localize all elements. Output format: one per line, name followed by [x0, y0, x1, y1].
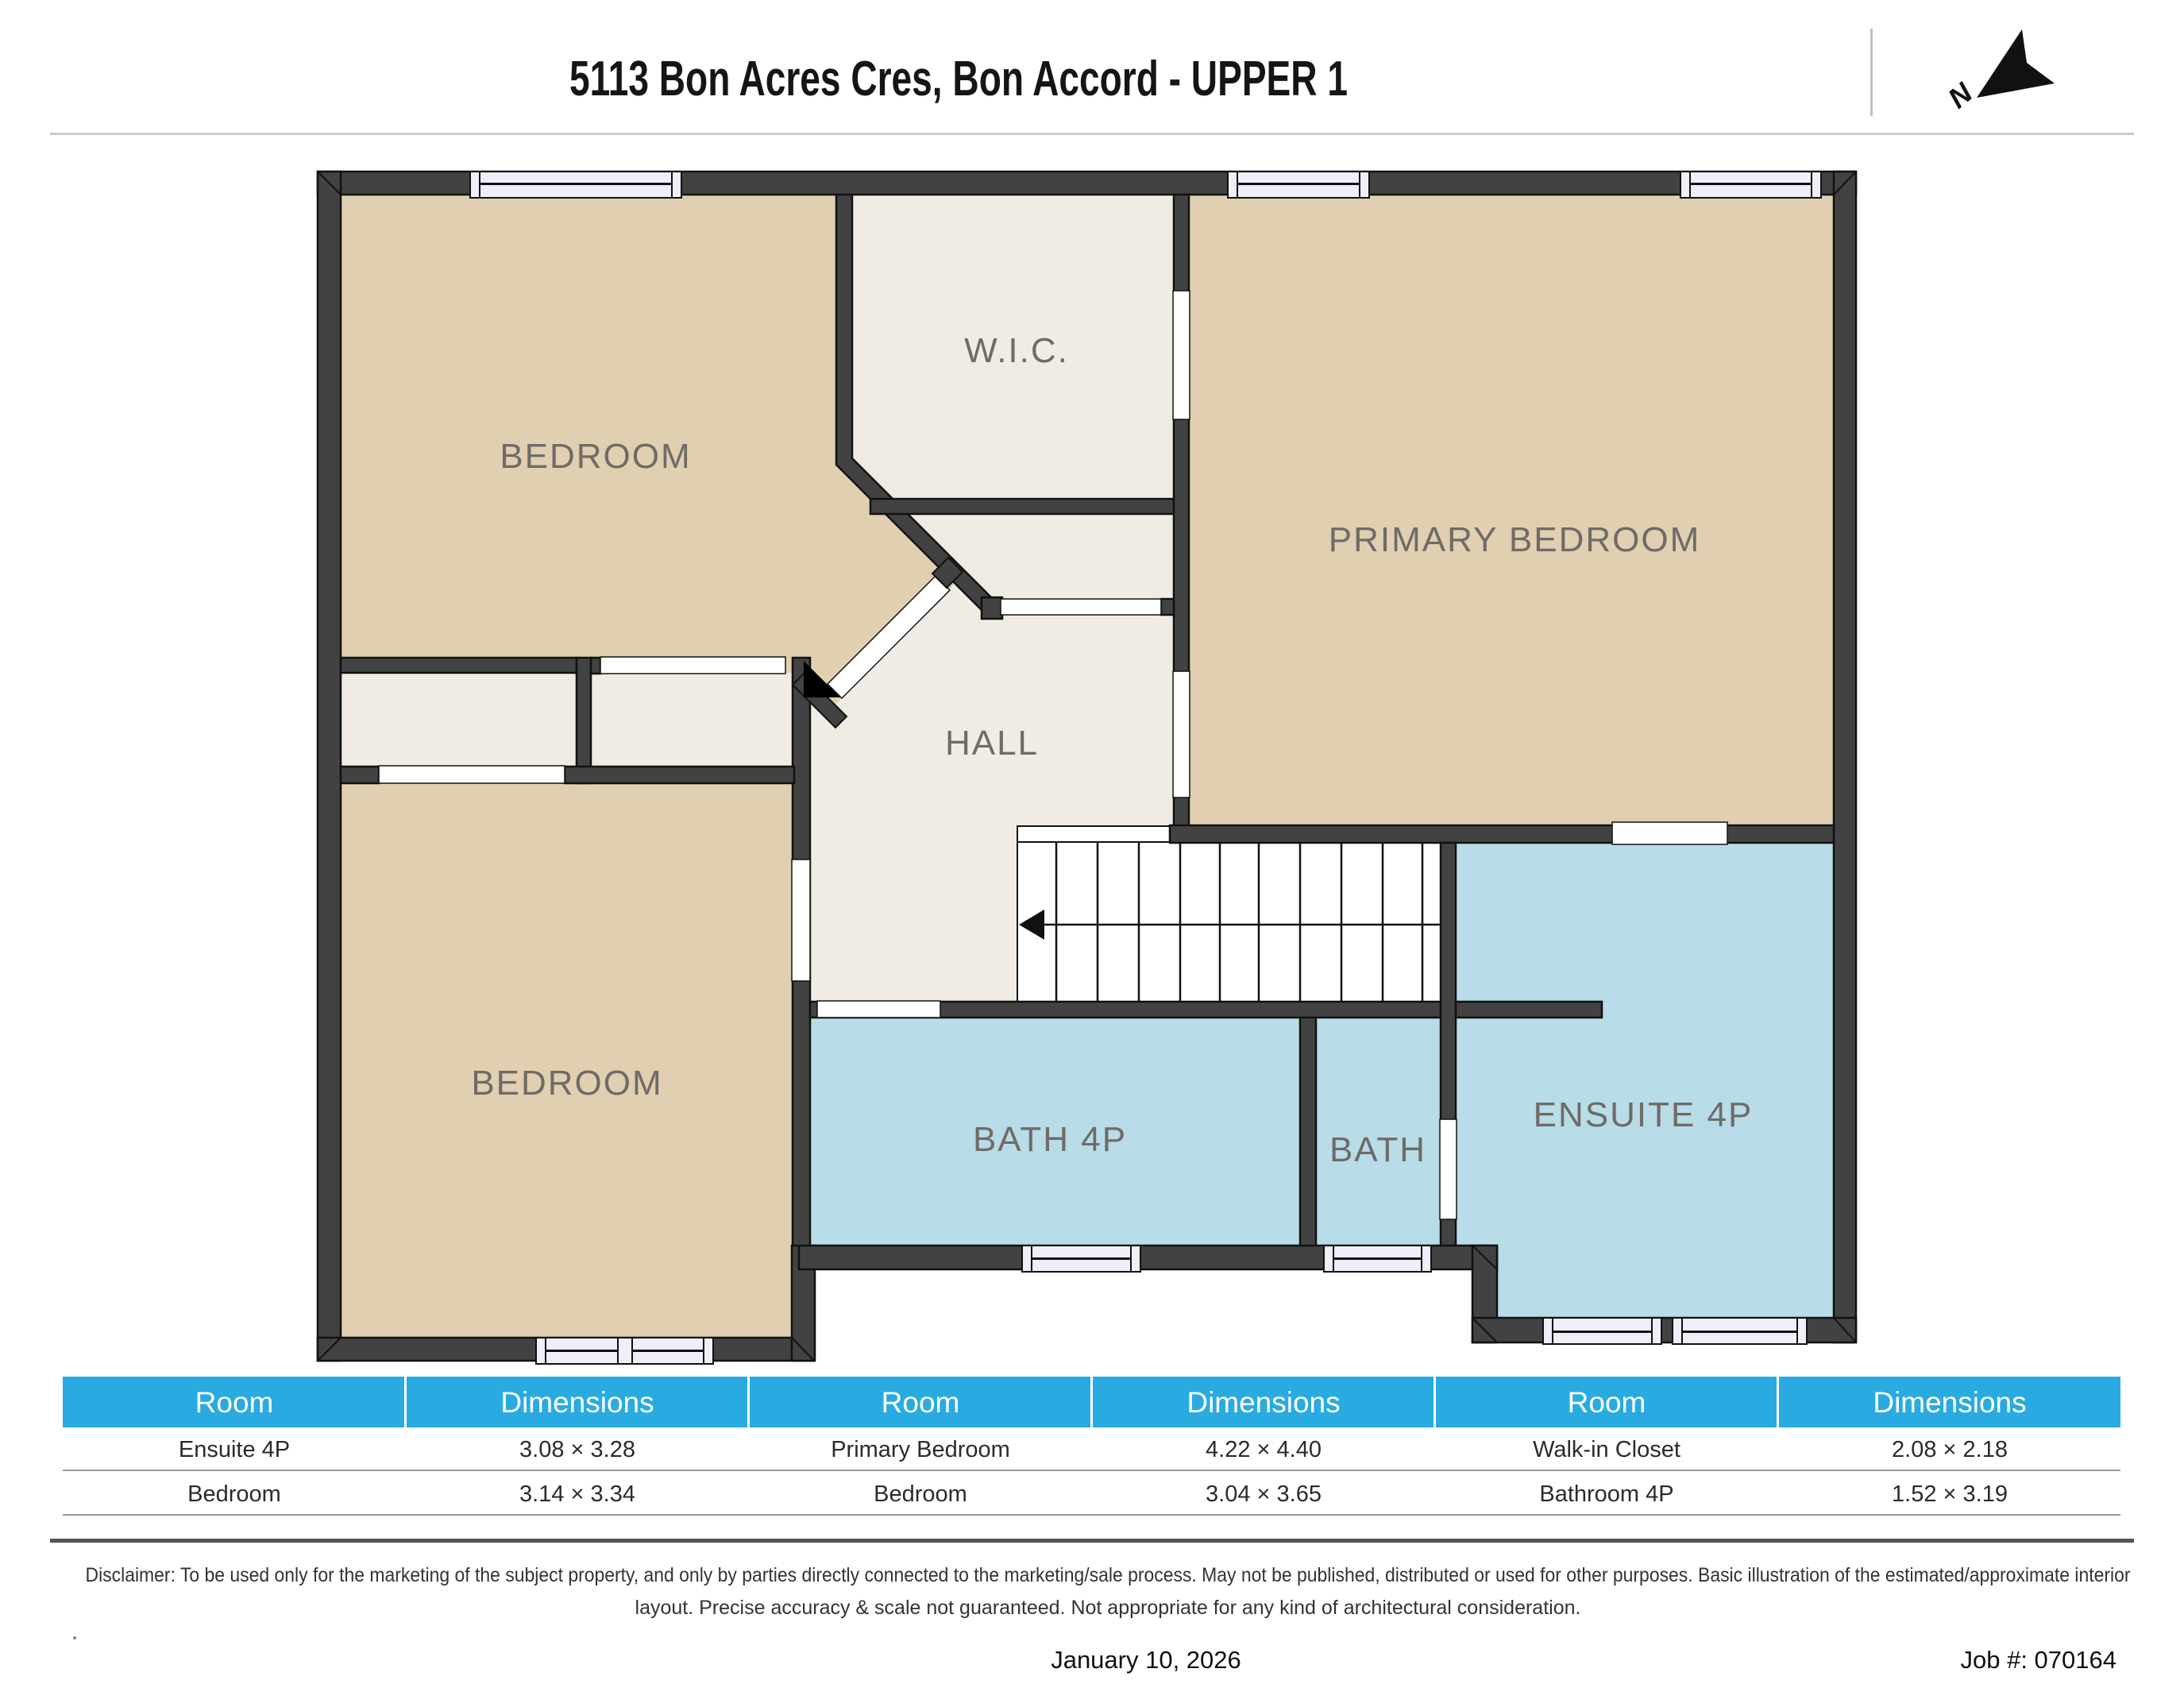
- svg-text:W.I.C.: W.I.C.: [964, 331, 1069, 370]
- svg-text:Room: Room: [882, 1386, 960, 1419]
- svg-text:BATH: BATH: [1329, 1130, 1426, 1169]
- svg-text:N: N: [1942, 75, 1979, 114]
- svg-text:Bathroom 4P: Bathroom 4P: [1539, 1481, 1673, 1507]
- svg-text:January 10, 2026: January 10, 2026: [1051, 1646, 1241, 1674]
- svg-text:Disclaimer: To be used only fo: Disclaimer: To be used only for the mark…: [86, 1564, 2131, 1586]
- svg-text:3.08 × 3.28: 3.08 × 3.28: [519, 1437, 635, 1462]
- svg-text:Dimensions: Dimensions: [1187, 1386, 1340, 1419]
- svg-text:Dimensions: Dimensions: [1873, 1386, 2026, 1419]
- svg-text:Room: Room: [195, 1386, 274, 1419]
- svg-text:2.08 × 2.18: 2.08 × 2.18: [1892, 1437, 2008, 1462]
- svg-text:Job #: 070164: Job #: 070164: [1960, 1646, 2116, 1674]
- svg-text:BEDROOM: BEDROOM: [471, 1064, 662, 1103]
- svg-text:layout. Precise accuracy & sca: layout. Precise accuracy & scale not gua…: [635, 1597, 1581, 1619]
- svg-text:Room: Room: [1568, 1386, 1646, 1419]
- svg-text:Dimensions: Dimensions: [500, 1386, 654, 1419]
- svg-text:5113 Bon Acres Cres, Bon Accor: 5113 Bon Acres Cres, Bon Accord - UPPER …: [569, 52, 1348, 106]
- svg-text:Bedroom: Bedroom: [187, 1481, 281, 1507]
- svg-text:3.04 × 3.65: 3.04 × 3.65: [1206, 1481, 1322, 1507]
- svg-text:3.14 × 3.34: 3.14 × 3.34: [519, 1481, 635, 1507]
- svg-text:4.22 × 4.40: 4.22 × 4.40: [1206, 1437, 1322, 1462]
- svg-text:BEDROOM: BEDROOM: [500, 437, 691, 476]
- svg-text:PRIMARY BEDROOM: PRIMARY BEDROOM: [1329, 520, 1700, 559]
- svg-text:Bedroom: Bedroom: [874, 1481, 967, 1507]
- svg-text:Ensuite 4P: Ensuite 4P: [179, 1437, 290, 1462]
- svg-text:1.52 × 3.19: 1.52 × 3.19: [1892, 1481, 2008, 1507]
- svg-text:HALL: HALL: [945, 724, 1039, 763]
- svg-text:BATH 4P: BATH 4P: [973, 1120, 1127, 1159]
- svg-text:Walk-in Closet: Walk-in Closet: [1533, 1437, 1680, 1462]
- svg-text:ENSUITE 4P: ENSUITE 4P: [1534, 1095, 1754, 1134]
- svg-text:Primary Bedroom: Primary Bedroom: [831, 1437, 1010, 1462]
